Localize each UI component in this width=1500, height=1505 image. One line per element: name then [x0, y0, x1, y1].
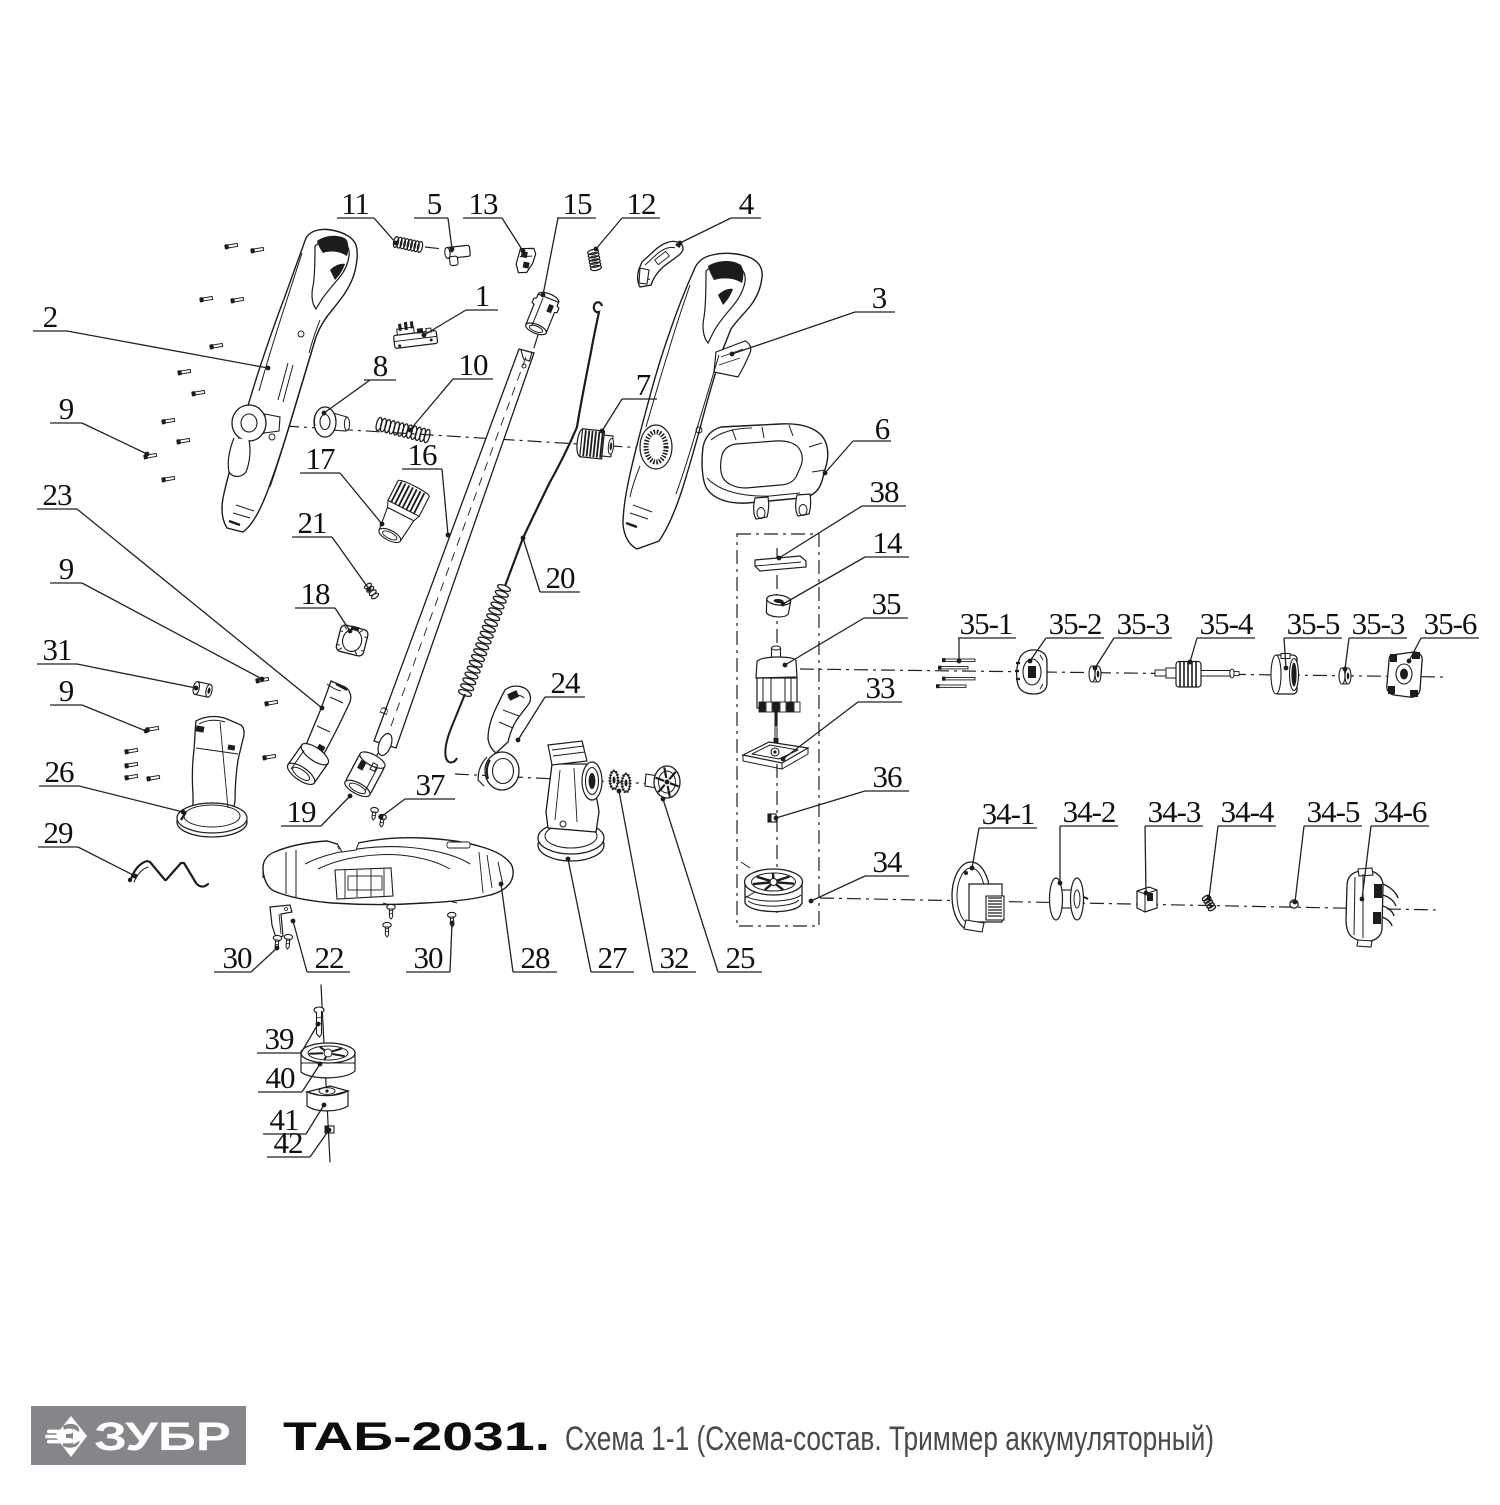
svg-text:33: 33	[866, 670, 896, 705]
svg-text:35-4: 35-4	[1200, 606, 1254, 641]
svg-text:5: 5	[427, 186, 442, 221]
svg-text:34-1: 34-1	[982, 796, 1035, 831]
svg-text:11: 11	[341, 186, 369, 221]
svg-text:42: 42	[274, 1125, 303, 1160]
svg-text:25: 25	[726, 940, 756, 975]
svg-text:9: 9	[59, 551, 74, 586]
svg-text:27: 27	[598, 940, 628, 975]
svg-text:34-5: 34-5	[1307, 794, 1360, 829]
svg-text:22: 22	[315, 940, 344, 975]
svg-text:7: 7	[636, 367, 651, 402]
svg-text:4: 4	[739, 186, 755, 221]
svg-text:1: 1	[475, 278, 490, 313]
svg-text:35-6: 35-6	[1424, 606, 1477, 641]
svg-text:35-2: 35-2	[1049, 606, 1102, 641]
svg-text:16: 16	[408, 437, 438, 472]
svg-text:37: 37	[416, 767, 446, 802]
svg-text:34-6: 34-6	[1374, 794, 1427, 829]
svg-text:13: 13	[469, 186, 499, 221]
svg-text:18: 18	[301, 576, 331, 611]
svg-text:10: 10	[459, 347, 489, 382]
svg-text:34-4: 34-4	[1221, 794, 1275, 829]
svg-text:29: 29	[44, 815, 74, 850]
svg-text:17: 17	[306, 441, 336, 476]
svg-text:28: 28	[521, 940, 551, 975]
svg-text:3: 3	[872, 280, 887, 315]
svg-text:31: 31	[43, 632, 72, 667]
svg-text:40: 40	[266, 1060, 296, 1095]
svg-text:34-2: 34-2	[1063, 794, 1116, 829]
svg-text:14: 14	[873, 525, 904, 560]
svg-text:2: 2	[43, 299, 58, 334]
svg-text:26: 26	[45, 754, 75, 789]
svg-text:35-3: 35-3	[1117, 606, 1170, 641]
svg-text:15: 15	[563, 186, 593, 221]
svg-text:35-1: 35-1	[960, 606, 1013, 641]
svg-text:35: 35	[872, 586, 902, 621]
svg-text:32: 32	[660, 940, 689, 975]
svg-text:9: 9	[59, 673, 74, 708]
svg-text:39: 39	[265, 1021, 295, 1056]
svg-text:38: 38	[870, 474, 900, 509]
svg-text:9: 9	[59, 391, 74, 426]
svg-text:Схема 1-1 (Схема-состав. Тримм: Схема 1-1 (Схема-состав. Триммер аккумул…	[565, 1420, 1214, 1458]
svg-text:ТАБ-2031.: ТАБ-2031.	[283, 1415, 550, 1459]
svg-text:19: 19	[287, 794, 317, 829]
svg-text:34: 34	[873, 844, 904, 879]
svg-text:36: 36	[873, 759, 903, 794]
svg-text:24: 24	[551, 665, 582, 700]
svg-text:30: 30	[223, 940, 253, 975]
svg-text:20: 20	[546, 560, 576, 595]
svg-text:ЗУБР: ЗУБР	[94, 1415, 231, 1459]
svg-text:35-3: 35-3	[1352, 606, 1405, 641]
svg-text:23: 23	[43, 477, 73, 512]
svg-text:8: 8	[373, 348, 388, 383]
svg-text:21: 21	[298, 505, 327, 540]
svg-text:12: 12	[627, 186, 656, 221]
svg-text:35-5: 35-5	[1287, 606, 1340, 641]
svg-text:34-3: 34-3	[1148, 794, 1201, 829]
svg-text:30: 30	[414, 940, 444, 975]
